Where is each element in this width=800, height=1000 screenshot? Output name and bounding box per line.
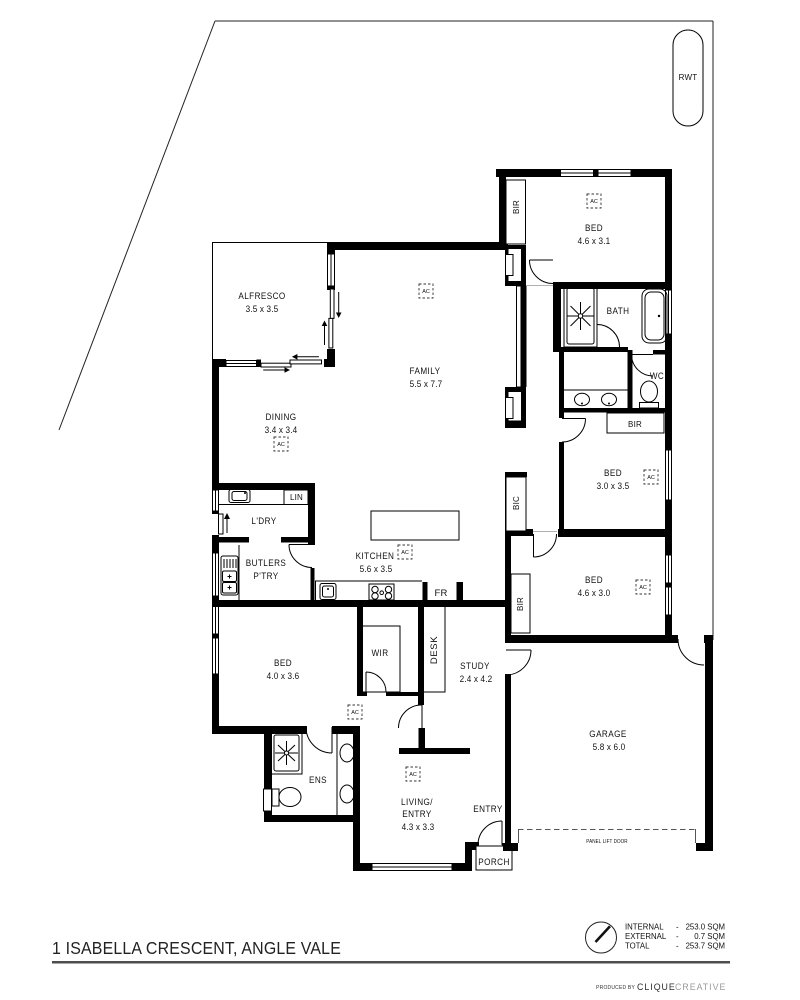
svg-text:5.8 x 6.0: 5.8 x 6.0 [593,741,626,752]
svg-text:P'TRY: P'TRY [253,570,278,581]
svg-text:PANEL LIFT DOOR: PANEL LIFT DOOR [586,839,628,845]
svg-text:INTERNAL: INTERNAL [625,923,664,932]
svg-text:L'DRY: L'DRY [251,515,276,526]
svg-text:AC: AC [277,442,285,448]
svg-text:TOTAL: TOTAL [625,942,650,951]
svg-text:BIR: BIR [628,420,642,429]
svg-text:3.4 x 3.4: 3.4 x 3.4 [265,424,298,435]
svg-text:-: - [676,932,679,941]
svg-text:BED: BED [585,574,603,585]
svg-text:AC: AC [647,475,655,481]
svg-text:AC: AC [590,199,598,205]
svg-text:4.6 x 3.0: 4.6 x 3.0 [578,587,611,598]
svg-text:FAMILY: FAMILY [410,365,441,376]
svg-text:EXTERNAL: EXTERNAL [625,932,667,941]
svg-text:AC: AC [351,710,359,716]
svg-text:KITCHEN: KITCHEN [356,550,395,561]
svg-text:RWT: RWT [679,73,698,82]
svg-text:BED: BED [585,222,603,233]
svg-text:PRODUCED BY: PRODUCED BY [596,985,635,991]
svg-text:BIC: BIC [512,496,521,510]
svg-text:4.0 x 3.6: 4.0 x 3.6 [267,670,300,681]
svg-text:BUTLERS: BUTLERS [246,557,287,568]
svg-text:LIVING/: LIVING/ [401,796,433,807]
svg-text:FR: FR [434,588,447,599]
svg-text:BATH: BATH [607,305,630,316]
svg-text:AC: AC [422,289,430,295]
svg-text:2.4 x 4.2: 2.4 x 4.2 [460,673,493,684]
svg-text:LIN: LIN [290,493,303,502]
svg-text:AC: AC [639,585,647,591]
svg-text:DESK: DESK [429,636,440,664]
svg-text:253.7 SQM: 253.7 SQM [686,942,725,951]
svg-text:AC: AC [401,550,409,556]
svg-text:ENS: ENS [309,774,327,785]
svg-text:ENTRY: ENTRY [473,803,503,814]
svg-text:BED: BED [274,657,292,668]
svg-text:WC: WC [650,370,664,381]
svg-text:4.6 x 3.1: 4.6 x 3.1 [578,235,611,246]
svg-text:GARAGE: GARAGE [589,728,626,739]
svg-text:PORCH: PORCH [478,856,510,867]
svg-text:BIR: BIR [512,200,521,214]
svg-text:-: - [676,923,679,932]
svg-text:5.6 x 3.5: 5.6 x 3.5 [360,563,393,574]
svg-text:3.5 x 3.5: 3.5 x 3.5 [246,303,279,314]
svg-text:1 ISABELLA CRESCENT, ANGLE VAL: 1 ISABELLA CRESCENT, ANGLE VALE [52,938,341,958]
svg-text:0.7 SQM: 0.7 SQM [694,932,725,941]
svg-text:253.0 SQM: 253.0 SQM [686,923,725,932]
svg-text:WIR: WIR [371,647,388,658]
svg-text:ALFRESCO: ALFRESCO [238,290,285,301]
svg-text:STUDY: STUDY [460,660,490,671]
svg-text:AC: AC [409,772,417,778]
svg-text:3.0 x 3.5: 3.0 x 3.5 [597,480,630,491]
svg-text:4.3 x 3.3: 4.3 x 3.3 [402,821,435,832]
svg-text:ENTRY: ENTRY [402,808,432,819]
svg-text:DINING: DINING [265,411,296,422]
svg-text:CREATIVE: CREATIVE [675,982,726,992]
svg-text:BIR: BIR [516,597,525,611]
svg-text:-: - [676,942,679,951]
svg-text:BED: BED [604,467,622,478]
svg-text:CLIQUE: CLIQUE [637,982,676,992]
svg-text:5.5 x 7.7: 5.5 x 7.7 [410,378,443,389]
